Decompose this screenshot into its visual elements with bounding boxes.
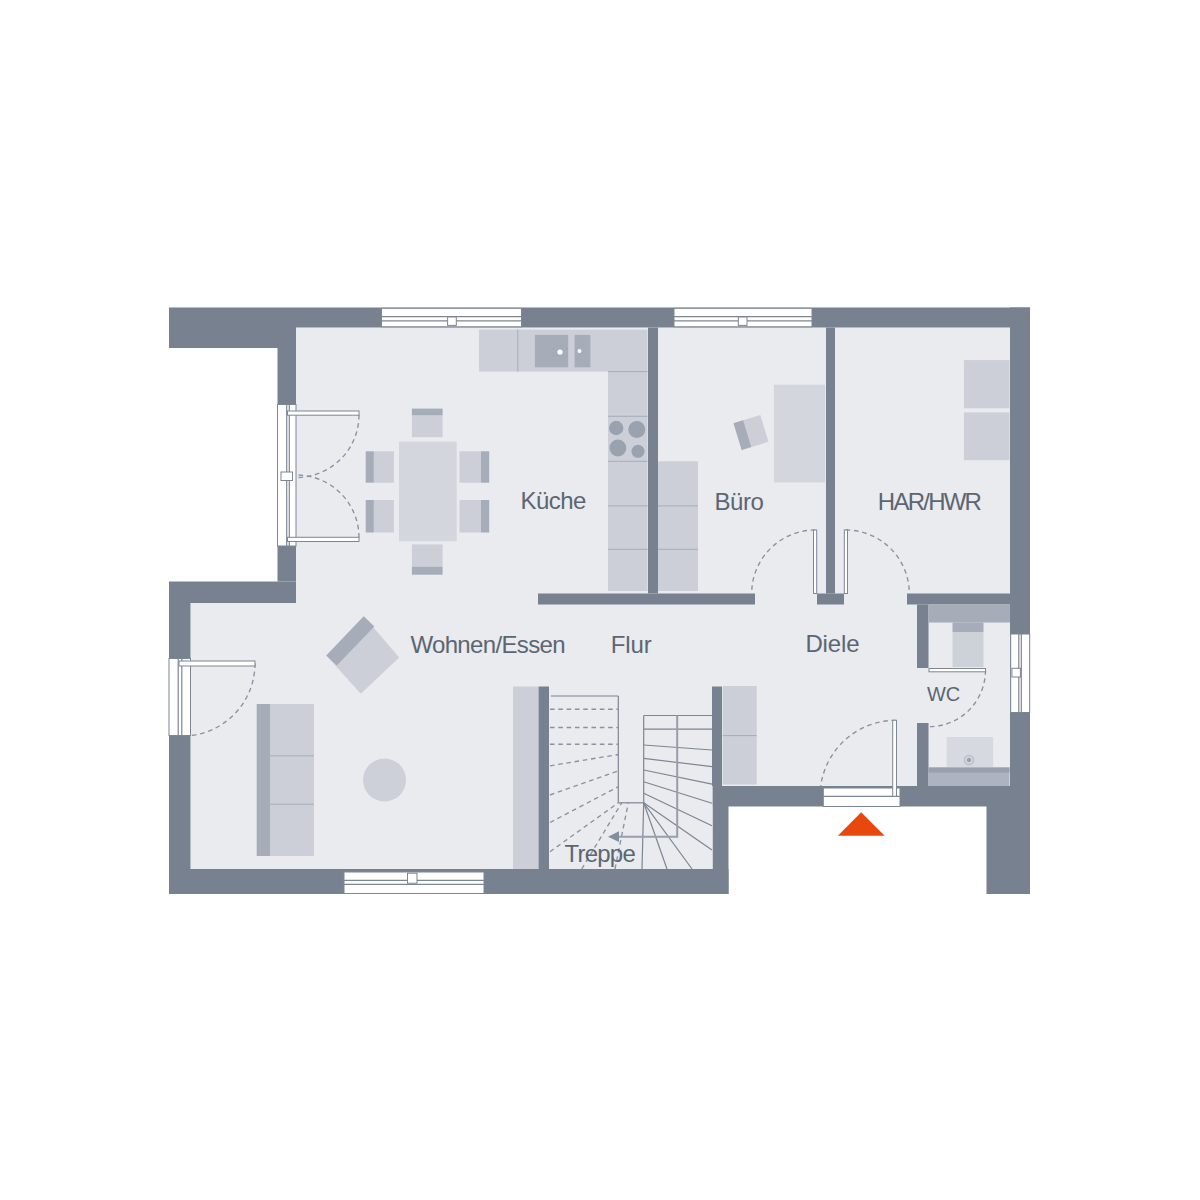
svg-text:Treppe: Treppe: [564, 840, 635, 867]
svg-text:HAR/HWR: HAR/HWR: [878, 488, 982, 515]
svg-text:Diele: Diele: [805, 630, 859, 657]
svg-text:Flur: Flur: [611, 631, 652, 658]
svg-text:Küche: Küche: [520, 487, 586, 514]
svg-text:Wohnen/Essen: Wohnen/Essen: [410, 631, 565, 658]
svg-text:Büro: Büro: [715, 488, 764, 515]
svg-text:WC: WC: [927, 683, 960, 705]
